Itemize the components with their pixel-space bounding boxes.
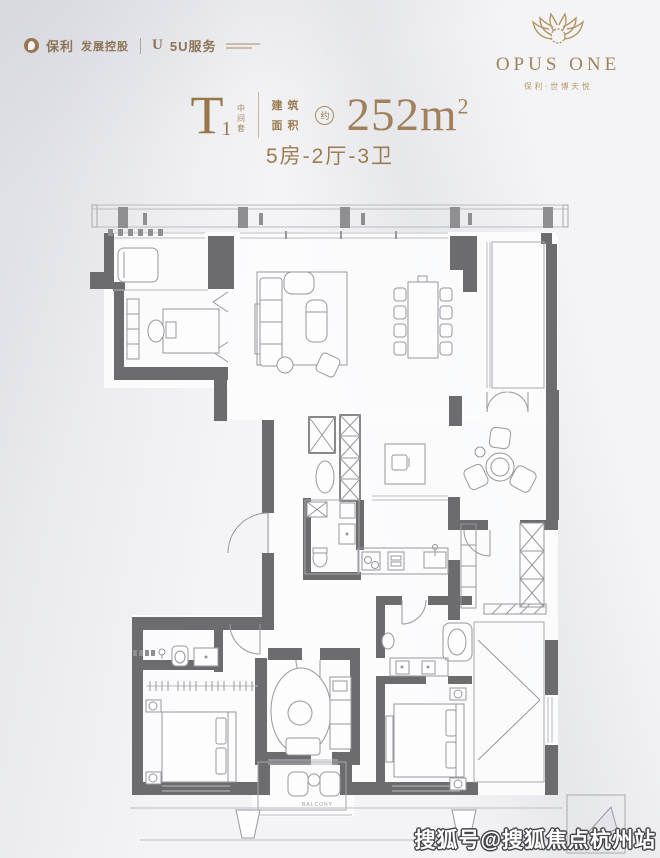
floor-plan: BALCONY (0, 0, 660, 858)
balcony-label: BALCONY (302, 802, 333, 808)
top-facade-band (92, 205, 568, 228)
poster: 保利 发展控股 U 5U服务 OPUS ONE 保利·世博天悦 T 1 中间套 (0, 0, 660, 858)
middle-bedroom (271, 668, 351, 755)
watermark: 搜狐号@搜狐焦点杭州站 (415, 824, 656, 854)
dining-furniture (394, 276, 452, 358)
